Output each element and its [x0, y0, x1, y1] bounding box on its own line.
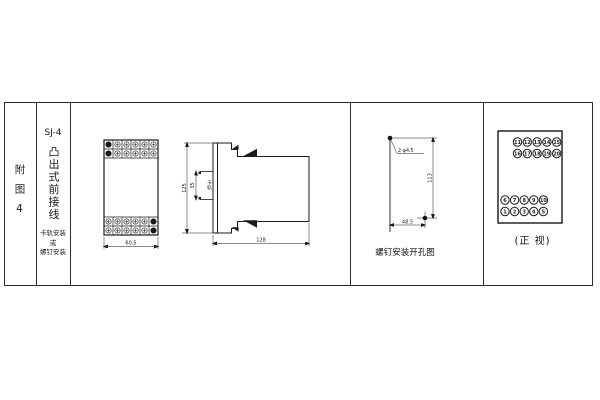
mount-line-2: 或: [36, 239, 70, 249]
mount-title: 凸出式前接线: [45, 146, 61, 221]
terminal-number: 10: [540, 198, 547, 204]
figure-label-cell: 附图4: [4, 102, 36, 285]
rail-label: 卡轨: [206, 180, 213, 190]
terminal-number: 11: [514, 140, 521, 146]
terminal-number: 18: [534, 151, 541, 157]
terminal-number: 7: [513, 198, 517, 204]
front-view-drawing: 60.5: [95, 128, 165, 253]
frame-divider-2: [70, 102, 71, 286]
terminal-view-drawing: 11 12 13 14 15 16 17 18 19 20 6 7 8 9 10…: [495, 126, 570, 241]
terminal-number: 20: [553, 151, 560, 157]
terminal-view-caption: (正 视): [492, 232, 573, 247]
width-dimension: 60.5: [104, 237, 158, 249]
height-dim-label: 125: [182, 183, 188, 193]
frame-bottom-line: [4, 285, 593, 286]
mount-subtitle: 卡轨安装 或 螺钉安装: [36, 229, 70, 258]
frame-divider-4: [483, 102, 484, 286]
mount-line-1: 卡轨安装: [36, 229, 70, 239]
drawing-sheet: 附图4 SJ-4 凸出式前接线 卡轨安装 或 螺钉安装: [0, 0, 600, 400]
depth-dim-label: 128: [256, 238, 266, 244]
vertical-dim-label: 113: [428, 173, 434, 183]
drill-holes: 2-φ4.5: [388, 136, 437, 232]
frame-top-line: [4, 102, 593, 103]
figure-label: 附图4: [13, 164, 28, 224]
side-view-drawing: 125 35 128: [180, 128, 315, 253]
title-cell: SJ-4 凸出式前接线 卡轨安装 或 螺钉安装: [36, 102, 70, 285]
drill-diagram: 2-φ4.5 113 48.5: [360, 128, 450, 258]
horizontal-dim-label: 48.5: [402, 219, 413, 225]
rail-dim-label: 35: [190, 182, 196, 188]
terminal-number: 19: [543, 151, 550, 157]
terminal-number: 4: [532, 209, 536, 215]
model-label: SJ-4: [36, 128, 70, 138]
frame-divider-3: [350, 102, 351, 286]
terminal-number: 5: [542, 209, 546, 215]
terminal-number: 9: [532, 198, 536, 204]
terminal-number: 17: [524, 151, 531, 157]
drill-diagram-caption: 螺钉安装开孔图: [356, 246, 454, 258]
frame-right-line: [592, 102, 593, 286]
mount-line-3: 螺钉安装: [36, 248, 70, 258]
terminal-number: 15: [553, 140, 560, 146]
terminal-number: 12: [524, 140, 531, 146]
terminal-number: 14: [543, 140, 550, 146]
terminal-number: 13: [534, 140, 541, 146]
relay-front-outline: [104, 140, 158, 235]
terminal-number: 6: [503, 198, 507, 204]
depth-dimension: 128: [213, 223, 309, 246]
terminal-number: 1: [503, 209, 507, 215]
hole-size-label: 2-φ4.5: [398, 148, 414, 154]
width-dim-label: 60.5: [125, 241, 136, 247]
terminal-number: 3: [522, 209, 526, 215]
terminal-number: 16: [514, 151, 521, 157]
relay-side-outline: [213, 143, 309, 233]
terminal-number: 8: [522, 198, 526, 204]
terminal-number: 2: [513, 209, 517, 215]
